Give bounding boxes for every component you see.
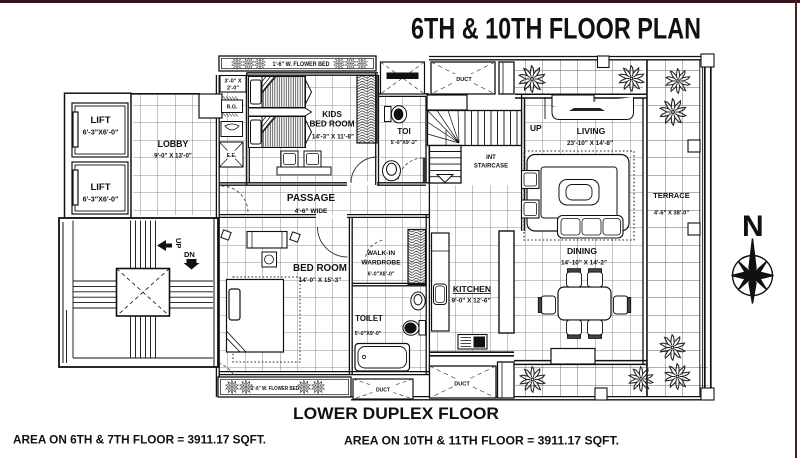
svg-text:E.E.: E.E. — [227, 153, 237, 159]
svg-text:2'-0": 2'-0" — [227, 86, 239, 92]
svg-text:LOWER DUPLEX FLOOR: LOWER DUPLEX FLOOR — [293, 404, 499, 423]
svg-text:14'-0" X 15'-3": 14'-0" X 15'-3" — [299, 277, 342, 284]
svg-text:SERVER ROOM: SERVER ROOM — [389, 74, 417, 79]
svg-text:14'-3" X 11'-8": 14'-3" X 11'-8" — [312, 134, 354, 141]
svg-text:KIDS: KIDS — [322, 110, 342, 119]
svg-text:INT: INT — [486, 155, 496, 161]
svg-text:2'-6" W. FLOWER BED: 2'-6" W. FLOWER BED — [251, 386, 299, 392]
svg-text:BED ROOM: BED ROOM — [309, 120, 354, 129]
svg-text:5'-0"X9'-0": 5'-0"X9'-0" — [355, 331, 382, 337]
svg-text:DN: DN — [184, 250, 195, 259]
svg-text:DUCT: DUCT — [376, 388, 390, 394]
svg-text:LIFT: LIFT — [90, 115, 110, 126]
svg-text:DINING: DINING — [567, 246, 597, 256]
svg-text:WARDROBE: WARDROBE — [361, 260, 401, 267]
svg-text:R.G.: R.G. — [227, 105, 238, 111]
svg-text:LIVING: LIVING — [577, 126, 606, 136]
svg-text:TERRACE: TERRACE — [653, 191, 690, 200]
svg-text:6'-3"X6'-0": 6'-3"X6'-0" — [83, 195, 119, 204]
svg-text:DUCT: DUCT — [456, 77, 472, 83]
svg-text:4'-6" X 38'-0": 4'-6" X 38'-0" — [654, 211, 690, 217]
svg-text:TOI: TOI — [397, 127, 411, 136]
svg-text:4'-6" WIDE: 4'-6" WIDE — [295, 208, 328, 215]
svg-text:AREA ON 6TH & 7TH FLOOR = 391: AREA ON 6TH & 7TH FLOOR = 3911.17 SQFT. — [13, 433, 266, 447]
svg-text:9'-0" X 12'-6": 9'-0" X 12'-6" — [452, 298, 491, 305]
svg-text:3'-0" X: 3'-0" X — [224, 79, 242, 85]
svg-text:9'-0" X 13'-0": 9'-0" X 13'-0" — [154, 153, 192, 160]
svg-text:6'-0"X8'-0": 6'-0"X8'-0" — [368, 272, 395, 278]
svg-text:UP: UP — [530, 123, 542, 133]
svg-text:AREA ON 10TH & 11TH FLOOR =: AREA ON 10TH & 11TH FLOOR = 3911.17 SQFT… — [344, 434, 619, 448]
svg-text:BED ROOM: BED ROOM — [293, 263, 347, 274]
svg-text:5'-0"X9'-2": 5'-0"X9'-2" — [391, 140, 418, 146]
svg-text:1'-6" W. FLOWER BED: 1'-6" W. FLOWER BED — [273, 61, 330, 68]
svg-text:14'-10" X 14'-2": 14'-10" X 14'-2" — [561, 260, 607, 267]
svg-text:DUCT: DUCT — [454, 382, 470, 388]
svg-text:STAIRCASE: STAIRCASE — [474, 164, 508, 170]
svg-text:LIFT: LIFT — [90, 182, 110, 193]
svg-text:WALK-IN: WALK-IN — [367, 250, 395, 257]
svg-text:TOILET: TOILET — [355, 314, 383, 323]
svg-text:23'-10" X 14'-8": 23'-10" X 14'-8" — [567, 140, 613, 147]
svg-text:PASSAGE: PASSAGE — [287, 193, 335, 204]
svg-text:6'-3"X6'-0": 6'-3"X6'-0" — [83, 128, 119, 137]
svg-text:6TH & 10TH FLOOR PLAN: 6TH & 10TH FLOOR PLAN — [411, 13, 701, 46]
svg-text:KITCHEN: KITCHEN — [453, 284, 491, 294]
svg-text:UP: UP — [174, 238, 183, 248]
svg-text:LOBBY: LOBBY — [158, 139, 189, 149]
svg-text:N: N — [742, 210, 764, 243]
